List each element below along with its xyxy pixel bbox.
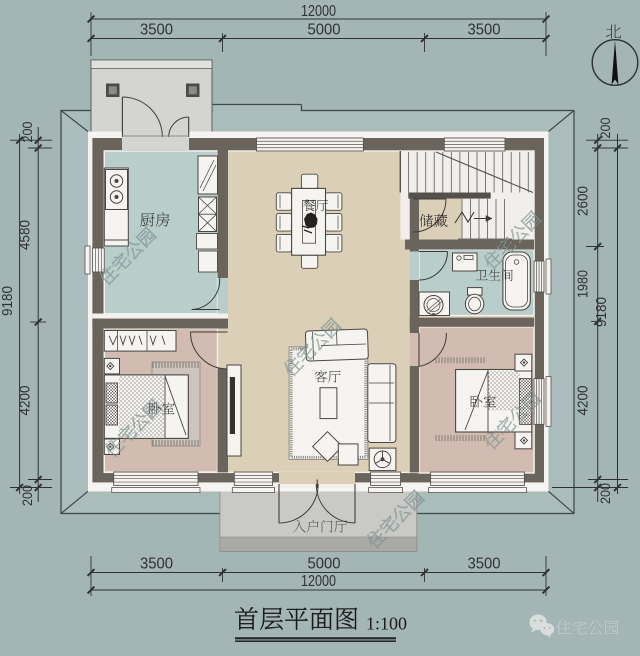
svg-text:4580: 4580	[17, 220, 34, 250]
svg-text:12000: 12000	[301, 573, 336, 590]
svg-text:200: 200	[19, 485, 35, 506]
svg-text:1980: 1980	[575, 270, 592, 298]
svg-text:4200: 4200	[17, 386, 34, 416]
svg-text:200: 200	[19, 121, 35, 142]
svg-text:1:100: 1:100	[366, 614, 407, 634]
svg-text:200: 200	[597, 483, 613, 504]
svg-text:200: 200	[597, 117, 613, 138]
svg-text:9180: 9180	[593, 297, 610, 327]
svg-text:3500: 3500	[468, 22, 501, 39]
svg-text:2600: 2600	[575, 186, 592, 216]
svg-text:5000: 5000	[308, 22, 341, 39]
svg-text:4200: 4200	[575, 386, 592, 416]
svg-text:5000: 5000	[308, 556, 341, 573]
svg-text:3500: 3500	[140, 22, 173, 39]
svg-text:9180: 9180	[0, 286, 16, 316]
svg-text:12000: 12000	[301, 3, 336, 20]
svg-text:3500: 3500	[468, 556, 501, 573]
svg-text:3500: 3500	[140, 556, 173, 573]
